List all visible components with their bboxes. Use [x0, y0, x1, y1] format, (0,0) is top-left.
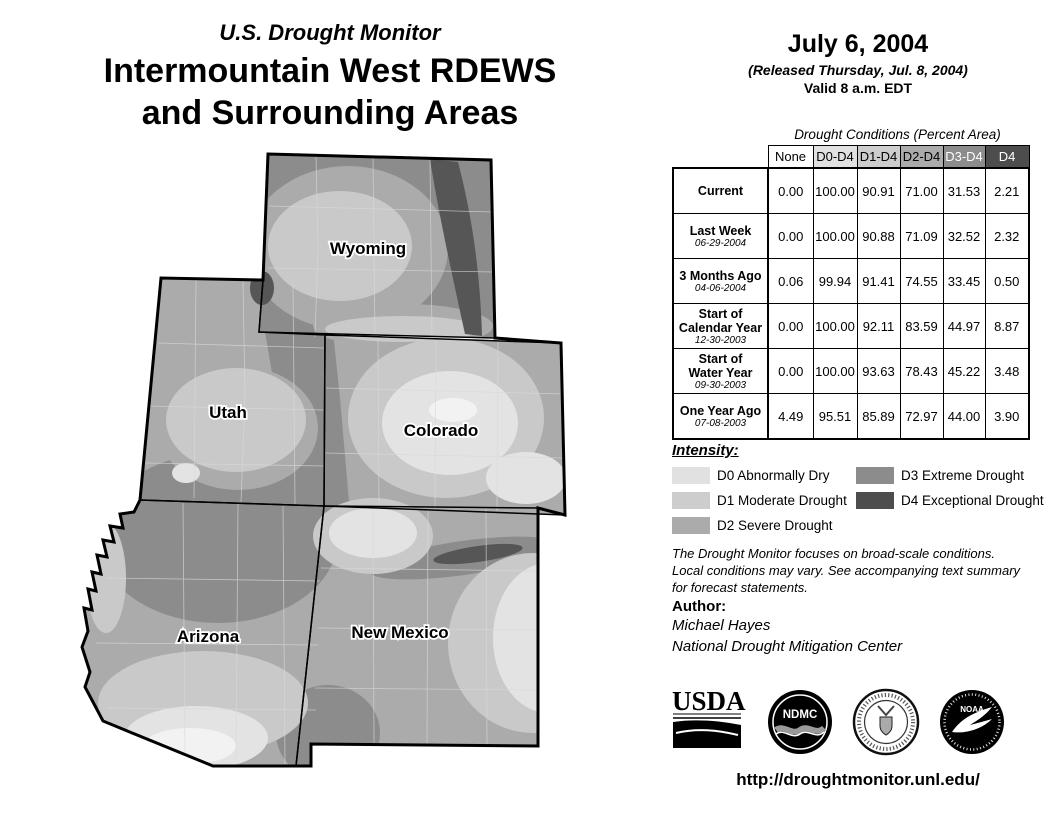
state-label-arizona: Arizona [177, 627, 240, 646]
state-label-colorado: Colorado [404, 421, 479, 440]
table-cell: 4.49 [768, 394, 813, 440]
report-header: U.S. Drought Monitor Intermountain West … [0, 20, 660, 134]
row-label: Start of Calendar Year12-30-2003 [673, 304, 768, 349]
row-label: One Year Ago07-08-2003 [673, 394, 768, 440]
report-title-line1: Intermountain West RDEWS [0, 50, 660, 92]
table-cell: 0.00 [768, 349, 813, 394]
legend-swatch-d1 [672, 492, 710, 509]
row-label: 3 Months Ago04-06-2004 [673, 259, 768, 304]
table-cell: 95.51 [813, 394, 857, 440]
legend-label: D0 Abnormally Dry [717, 468, 830, 483]
table-cell: 99.94 [813, 259, 857, 304]
table-cell: 100.00 [813, 168, 857, 214]
legend-title: Intensity: [672, 442, 1052, 459]
table-cell: 2.21 [985, 168, 1029, 214]
table-row: Start of Calendar Year12-30-20030.00100.… [673, 304, 1029, 349]
svg-text:NDMC: NDMC [783, 709, 818, 721]
table-cell: 90.88 [857, 214, 900, 259]
table-cell: 74.55 [900, 259, 943, 304]
ndmc-logo: NDMC [768, 690, 832, 754]
disclaimer-line: The Drought Monitor focuses on broad-sca… [672, 545, 1054, 562]
report-kicker: U.S. Drought Monitor [0, 20, 660, 46]
row-label: Current [673, 168, 768, 214]
table-cell: 100.00 [813, 214, 857, 259]
disclaimer: The Drought Monitor focuses on broad-sca… [672, 545, 1054, 596]
disclaimer-line: for forecast statements. [672, 579, 1054, 596]
table-cell: 100.00 [813, 304, 857, 349]
column-header-d0-d4: D0-D4 [813, 146, 857, 169]
table-row: Start of Water Year09-30-20030.00100.009… [673, 349, 1029, 394]
drought-conditions-table: NoneD0-D4D1-D4D2-D4D3-D4D4 Current0.0010… [672, 145, 1030, 440]
table-cell: 0.00 [768, 304, 813, 349]
row-date: 12-30-2003 [674, 335, 767, 346]
table-cell: 100.00 [813, 349, 857, 394]
table-cell: 85.89 [857, 394, 900, 440]
agency-logos: USDA NDMC [672, 686, 1028, 758]
svg-text:USDA: USDA [672, 686, 746, 716]
legend-item-d3: D3 Extreme Drought [856, 467, 1044, 484]
table-cell: 3.90 [985, 394, 1029, 440]
table-corner-cell [673, 146, 768, 169]
table-cell: 0.00 [768, 168, 813, 214]
table-cell: 0.50 [985, 259, 1029, 304]
column-header-d1-d4: D1-D4 [857, 146, 900, 169]
row-date: 09-30-2003 [674, 380, 767, 391]
state-label-new-mexico: New Mexico [351, 623, 448, 642]
date-block: July 6, 2004 (Released Thursday, Jul. 8,… [660, 30, 1056, 96]
row-date: 04-06-2004 [674, 283, 767, 294]
table-cell: 32.52 [943, 214, 985, 259]
author-name: Michael Hayes [672, 615, 1054, 636]
table-cell: 90.91 [857, 168, 900, 214]
legend-columns: D0 Abnormally DryD1 Moderate DroughtD2 S… [672, 467, 1052, 534]
legend-swatch-d2 [672, 517, 710, 534]
report-date: July 6, 2004 [660, 30, 1056, 59]
row-date: 07-08-2003 [674, 418, 767, 429]
drought-monitor-report: U.S. Drought Monitor Intermountain West … [0, 0, 1056, 816]
table-cell: 0.00 [768, 214, 813, 259]
table-header-row: NoneD0-D4D1-D4D2-D4D3-D4D4 [673, 146, 1029, 169]
table-cell: 45.22 [943, 349, 985, 394]
report-title-line2: and Surrounding Areas [0, 92, 660, 134]
legend-label: D2 Severe Drought [717, 518, 833, 533]
website-url[interactable]: http://droughtmonitor.unl.edu/ [660, 770, 1056, 790]
table-cell: 91.41 [857, 259, 900, 304]
table-row: One Year Ago07-08-20034.4995.5185.8972.9… [673, 394, 1029, 440]
legend-swatch-d4 [856, 492, 894, 509]
legend-item-d0: D0 Abnormally Dry [672, 467, 856, 484]
table-cell: 78.43 [900, 349, 943, 394]
table-cell: 93.63 [857, 349, 900, 394]
table-caption: Drought Conditions (Percent Area) [767, 127, 1028, 142]
state-label-utah: Utah [209, 403, 247, 422]
column-header-d3-d4: D3-D4 [943, 146, 985, 169]
table-cell: 31.53 [943, 168, 985, 214]
legend-swatch-d3 [856, 467, 894, 484]
legend-label: D4 Exceptional Drought [901, 493, 1044, 508]
legend-item-d1: D1 Moderate Drought [672, 492, 856, 509]
table-row: Last Week06-29-20040.00100.0090.8871.093… [673, 214, 1029, 259]
valid-time: Valid 8 a.m. EDT [660, 80, 1056, 96]
table-cell: 71.09 [900, 214, 943, 259]
intensity-legend: Intensity: D0 Abnormally DryD1 Moderate … [672, 442, 1052, 534]
legend-label: D1 Moderate Drought [717, 493, 847, 508]
table-cell: 44.00 [943, 394, 985, 440]
table-cell: 33.45 [943, 259, 985, 304]
table-cell: 92.11 [857, 304, 900, 349]
table-row: Current0.00100.0090.9171.0031.532.21 [673, 168, 1029, 214]
drought-map: Wyoming Utah Colorado Arizona New Mexico [78, 148, 658, 800]
author-heading: Author: [672, 598, 1054, 615]
disclaimer-line: Local conditions may vary. See accompany… [672, 562, 1054, 579]
commerce-seal-logo [854, 690, 918, 754]
row-label: Start of Water Year09-30-2003 [673, 349, 768, 394]
right-panel: July 6, 2004 (Released Thursday, Jul. 8,… [660, 0, 1056, 816]
release-date: (Released Thursday, Jul. 8, 2004) [660, 62, 1056, 78]
column-header-d2-d4: D2-D4 [900, 146, 943, 169]
table-cell: 0.06 [768, 259, 813, 304]
table-cell: 71.00 [900, 168, 943, 214]
table-cell: 3.48 [985, 349, 1029, 394]
table-row: 3 Months Ago04-06-20040.0699.9491.4174.5… [673, 259, 1029, 304]
legend-label: D3 Extreme Drought [901, 468, 1024, 483]
state-label-wyoming: Wyoming [330, 239, 406, 258]
row-label: Last Week06-29-2004 [673, 214, 768, 259]
report-title: Intermountain West RDEWS and Surrounding… [0, 50, 660, 134]
usda-logo: USDA [672, 686, 746, 748]
noaa-logo: NOAA [940, 690, 1004, 754]
table-cell: 2.32 [985, 214, 1029, 259]
legend-swatch-d0 [672, 467, 710, 484]
table-cell: 72.97 [900, 394, 943, 440]
author-block: Author: Michael Hayes National Drought M… [672, 598, 1054, 657]
table-cell: 83.59 [900, 304, 943, 349]
legend-item-d4: D4 Exceptional Drought [856, 492, 1044, 509]
column-header-none: None [768, 146, 813, 169]
table-cell: 8.87 [985, 304, 1029, 349]
legend-item-d2: D2 Severe Drought [672, 517, 856, 534]
row-date: 06-29-2004 [674, 238, 767, 249]
author-organization: National Drought Mitigation Center [672, 636, 1054, 657]
table-cell: 44.97 [943, 304, 985, 349]
column-header-d4: D4 [985, 146, 1029, 169]
